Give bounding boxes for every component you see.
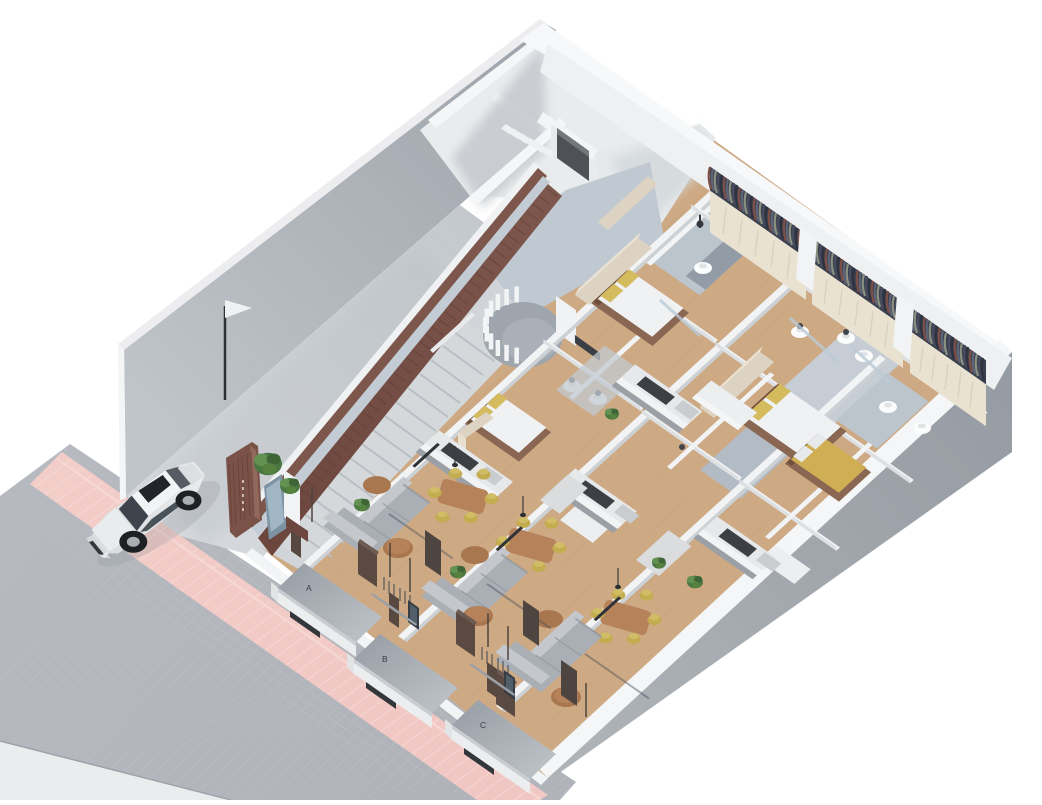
svg-text:C: C	[480, 720, 486, 730]
svg-text:B: B	[382, 654, 388, 664]
svg-text:A: A	[306, 583, 312, 593]
